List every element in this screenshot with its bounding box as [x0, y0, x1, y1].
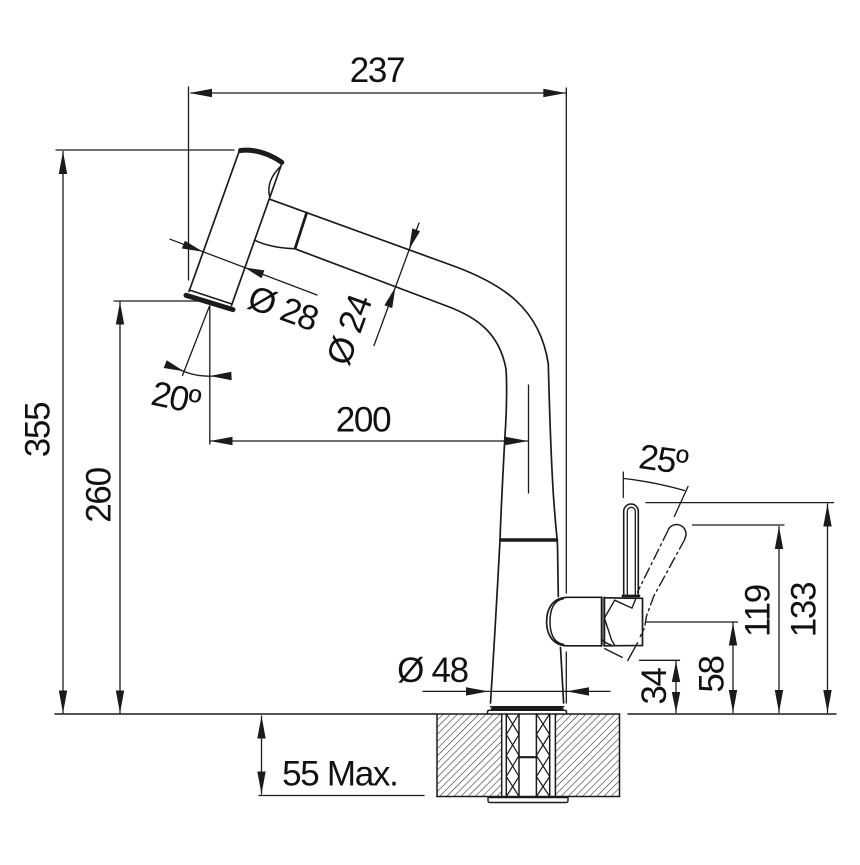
svg-text:55 Max.: 55 Max.: [282, 755, 397, 794]
svg-text:237: 237: [350, 51, 405, 90]
svg-text:133: 133: [785, 583, 824, 638]
svg-text:200: 200: [336, 401, 391, 440]
svg-text:25º: 25º: [637, 437, 691, 482]
svg-text:260: 260: [80, 467, 119, 522]
svg-text:Ø 48: Ø 48: [397, 651, 468, 690]
svg-text:58: 58: [693, 656, 732, 692]
svg-text:119: 119: [739, 585, 778, 637]
svg-text:34: 34: [635, 668, 674, 705]
svg-text:355: 355: [19, 403, 58, 458]
